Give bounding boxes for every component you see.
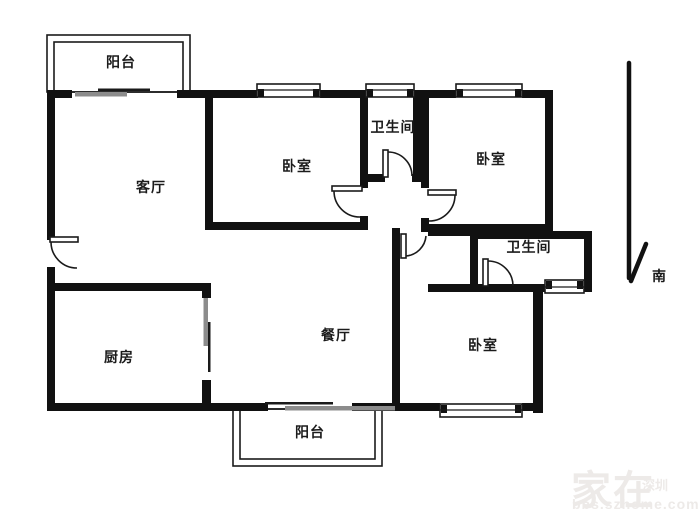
- door-bedroom1: [332, 186, 362, 217]
- wall-bedroom2-left-lower: [421, 218, 429, 232]
- wall-bedroom1-bottom: [205, 222, 364, 230]
- wall-bedroom2-right: [545, 90, 553, 232]
- watermark-site: bbs.szhome.com: [572, 496, 700, 512]
- wall-top-b: [177, 90, 258, 98]
- window-bedroom3-bottom: [440, 404, 522, 417]
- wall-bedroom2-left-upper: [421, 92, 429, 188]
- wall-left-upper: [47, 90, 55, 240]
- label-bedroom-1: 卧室: [282, 156, 312, 176]
- label-bedroom-2: 卧室: [476, 149, 506, 169]
- slider-balcony-top-gray: [75, 92, 127, 97]
- wall-bathroom1-right: [413, 96, 421, 182]
- south-arrow: [629, 63, 646, 281]
- label-balcony-bottom: 阳台: [295, 422, 325, 442]
- door-bedroom3-suite: [401, 234, 426, 258]
- window-bathroom1-top: [366, 84, 414, 97]
- wall-dining-bedroom3: [392, 228, 400, 411]
- label-living-room: 客厅: [136, 177, 166, 197]
- window-bedroom1-top: [257, 84, 320, 97]
- wall-bathroom2-right: [584, 231, 592, 292]
- door-bathroom2: [483, 259, 513, 286]
- door-bedroom2: [428, 190, 456, 221]
- wall-bedroom3-right: [533, 286, 543, 413]
- wall-living-right: [205, 92, 213, 230]
- slider-balcony-bottom-black: [265, 402, 333, 405]
- label-bathroom-1: 卫生间: [371, 117, 416, 137]
- label-dining-room: 餐厅: [321, 325, 351, 345]
- window-bedroom2-top: [456, 84, 522, 97]
- label-bathroom-2: 卫生间: [507, 237, 552, 257]
- wall-bottom-c: [522, 403, 543, 411]
- wall-bathroom1-stub-left: [360, 174, 385, 182]
- wall-bedroom1-right-lower: [360, 216, 368, 230]
- wall-vestibule-top: [428, 228, 472, 236]
- slider-balcony-bottom-gray: [285, 406, 395, 411]
- wall-bathroom2-left: [470, 236, 478, 284]
- wall-top-a: [47, 90, 72, 98]
- wall-top-c: [320, 90, 366, 98]
- wall-bedroom3-top: [428, 284, 535, 292]
- label-balcony-top: 阳台: [106, 52, 136, 72]
- slider-kitchen-gray: [204, 298, 209, 346]
- slider-balcony-top-black: [98, 89, 150, 92]
- wall-kitchen-stub-top: [202, 283, 211, 298]
- label-kitchen: 厨房: [104, 347, 134, 367]
- label-bedroom-3: 卧室: [468, 335, 498, 355]
- watermark-city: 深圳: [642, 475, 668, 494]
- floor-plan: 阳台 客厅 卧室 卫生间 卧室 卫生间 餐厅 厨房 卧室 阳台 南 家在 深圳 …: [0, 0, 700, 525]
- floor-plan-drawing: [0, 0, 700, 525]
- slider-kitchen-black: [208, 322, 211, 372]
- wall-kitchen-top: [47, 283, 210, 291]
- door-bathroom1: [383, 150, 412, 177]
- door-entrance: [50, 237, 78, 268]
- label-south: 南: [652, 266, 666, 286]
- window-bathroom2-bottom: [545, 280, 584, 293]
- wall-bottom-a: [47, 403, 268, 411]
